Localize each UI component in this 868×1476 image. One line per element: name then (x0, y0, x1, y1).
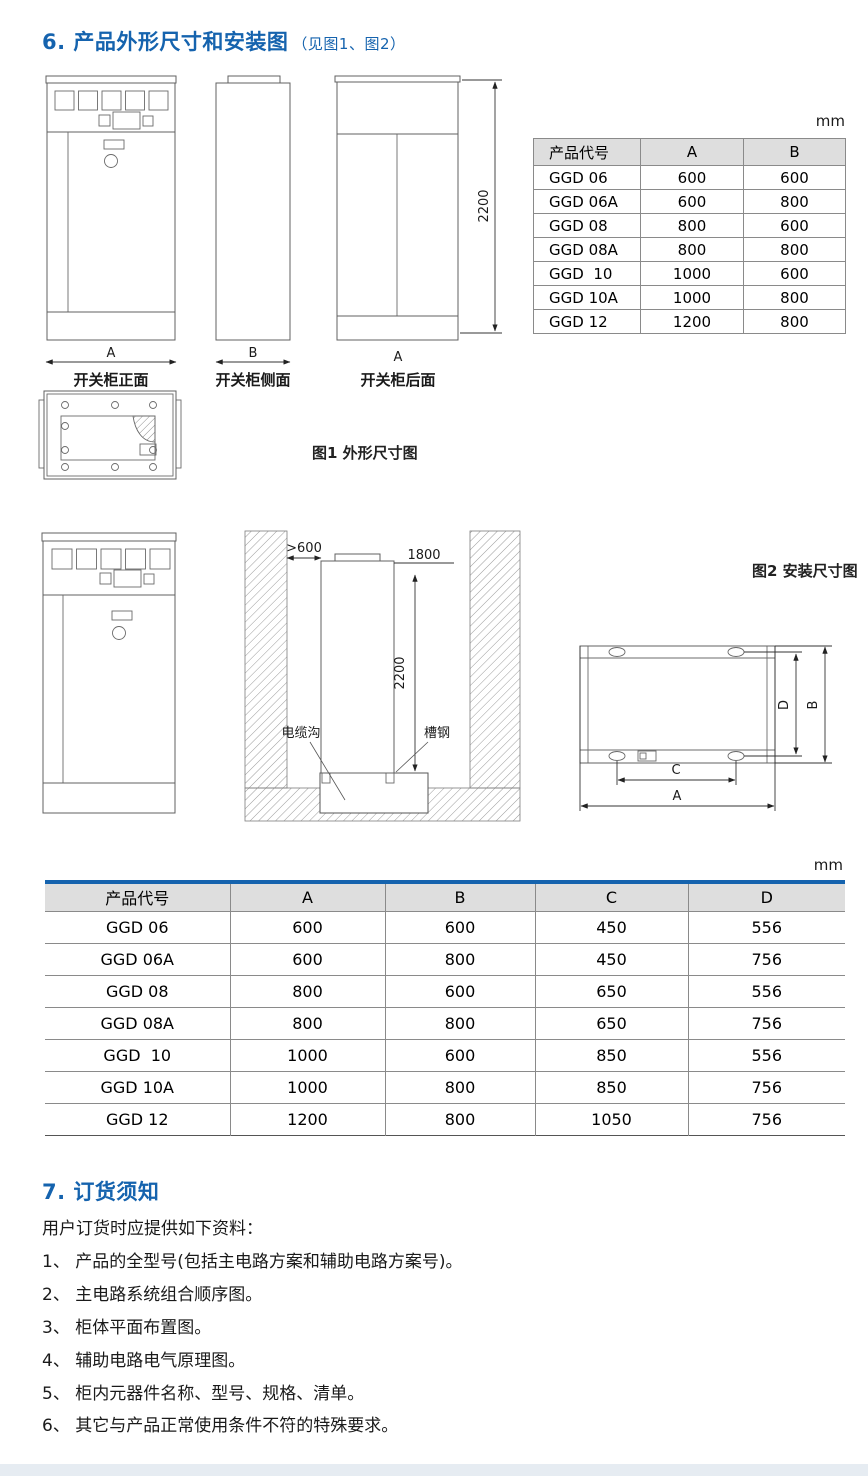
order-info-item: 2、 主电路系统组合顺序图。 (42, 1280, 262, 1305)
table-cell: 600 (641, 190, 744, 214)
table-cell: 650 (535, 975, 688, 1007)
table-row: GGD 101000600850556 (45, 1039, 845, 1071)
table-header-cell: A (641, 139, 744, 166)
table-cell: 800 (744, 238, 846, 262)
table-row: GGD 121200800 (534, 310, 846, 334)
order-info-item: 4、 辅助电路电气原理图。 (42, 1346, 245, 1371)
table-header-cell: 产品代号 (45, 882, 230, 911)
plan-dim-a-label: A (673, 789, 682, 804)
channel-steel-label: 槽钢 (424, 726, 450, 741)
table-cell: 850 (535, 1039, 688, 1071)
table-cell: GGD 12 (534, 310, 641, 334)
table-header-cell: 产品代号 (534, 139, 641, 166)
table-cell: 756 (688, 1007, 845, 1039)
top-view-drawing (36, 388, 184, 484)
table-cell: 1050 (535, 1103, 688, 1135)
rear-view-caption: 开关柜后面 (360, 371, 435, 389)
installation-dimension-table: 产品代号 A B C D GGD 06600600450556 GGD 06A6… (45, 880, 845, 1136)
table-cell: 600 (230, 943, 385, 975)
table-header-cell: C (535, 882, 688, 911)
page-bottom-edge (0, 1464, 868, 1476)
table-cell: 600 (641, 166, 744, 190)
table-cell: GGD 08 (45, 975, 230, 1007)
table-cell: 800 (385, 1103, 535, 1135)
section6-title-note: （见图1、图2） (292, 35, 405, 53)
clearance-dim-label: >600 (286, 541, 322, 556)
height-dim-label: 2200 (477, 189, 492, 222)
table-cell: 800 (744, 310, 846, 334)
plan-dim-d-label: D (777, 700, 792, 710)
table-cell: 756 (688, 1071, 845, 1103)
table-row: GGD 08800600650556 (45, 975, 845, 1007)
section6-title: 6. 产品外形尺寸和安装图（见图1、图2） (42, 26, 406, 56)
table-cell: 756 (688, 943, 845, 975)
pit-cross-section-drawing: >600 1800 2200 电缆沟 槽钢 (245, 531, 520, 821)
front-view-caption: 开关柜正面 (73, 371, 148, 389)
side-view-drawing: B 开关柜侧面 (215, 76, 290, 389)
order-info-item: 5、 柜内元器件名称、型号、规格、清单。 (42, 1379, 364, 1404)
table-cell: GGD 10 (45, 1039, 230, 1071)
table-row: GGD 06A600800450756 (45, 943, 845, 975)
table-cell: GGD 10A (45, 1071, 230, 1103)
table-header-row: 产品代号 A B (534, 139, 846, 166)
table2-unit-label: mm (543, 856, 843, 874)
table-cell: 600 (385, 1039, 535, 1071)
table-header-cell: D (688, 882, 845, 911)
table-cell: GGD 08 (534, 214, 641, 238)
table-cell: 850 (535, 1071, 688, 1103)
plan-dim-c-label: C (671, 763, 680, 778)
table-cell: 556 (688, 911, 845, 943)
table-row: GGD 06600600450556 (45, 911, 845, 943)
table-cell: 600 (744, 166, 846, 190)
table-cell: 600 (744, 214, 846, 238)
order-info-item: 1、 产品的全型号(包括主电路方案和辅助电路方案号)。 (42, 1247, 462, 1272)
figure1-caption: 图1 外形尺寸图 (312, 442, 418, 463)
table-cell: 1000 (230, 1039, 385, 1071)
side-view-caption: 开关柜侧面 (215, 371, 290, 389)
table-cell: 600 (230, 911, 385, 943)
cabinet-front-drawing (42, 533, 176, 813)
table-cell: 800 (641, 214, 744, 238)
table-cell: 800 (385, 1071, 535, 1103)
table1-unit-label: mm (533, 112, 845, 130)
table-header-row: 产品代号 A B C D (45, 882, 845, 911)
document-page: 6. 产品外形尺寸和安装图（见图1、图2） A 开关柜正 (0, 0, 868, 1476)
table-cell: 800 (385, 943, 535, 975)
table-cell: 450 (535, 911, 688, 943)
order-info-item: 6、 其它与产品正常使用条件不符的特殊要求。 (42, 1411, 398, 1436)
table-cell: 1200 (230, 1103, 385, 1135)
table-row: GGD 101000600 (534, 262, 846, 286)
table-cell: 556 (688, 1039, 845, 1071)
height-dimension: 2200 (460, 80, 502, 333)
side-depth-dim-label: B (249, 346, 258, 361)
table-cell: GGD 06 (534, 166, 641, 190)
table-cell: 800 (230, 1007, 385, 1039)
table-cell: 756 (688, 1103, 845, 1135)
table-row: GGD 1212008001050756 (45, 1103, 845, 1135)
table-cell: GGD 06 (45, 911, 230, 943)
table-row: GGD 10A1000800850756 (45, 1071, 845, 1103)
rear-width-dim-label: A (394, 350, 403, 365)
table-cell: GGD 10A (534, 286, 641, 310)
table-cell: GGD 06A (45, 943, 230, 975)
table-cell: 600 (744, 262, 846, 286)
table-cell: GGD 12 (45, 1103, 230, 1135)
table-row: GGD 06A600800 (534, 190, 846, 214)
cable-trench-label: 电缆沟 (281, 725, 320, 741)
table-row: GGD 06600600 (534, 166, 846, 190)
table-cell: GGD 10 (534, 262, 641, 286)
section6-title-text: 6. 产品外形尺寸和安装图 (42, 30, 288, 54)
foundation-plan-drawing: D B C A (580, 646, 832, 811)
section7-title: 7. 订货须知 (42, 1176, 159, 1206)
plan-dim-b-label: B (806, 701, 821, 710)
section7-title-text: 7. 订货须知 (42, 1180, 159, 1204)
table-cell: 800 (744, 286, 846, 310)
installation-drawings: >600 1800 2200 电缆沟 槽钢 (30, 523, 860, 835)
table-cell: 1200 (641, 310, 744, 334)
table-cell: 800 (230, 975, 385, 1007)
table-cell: 600 (385, 975, 535, 1007)
table-header-cell: B (744, 139, 846, 166)
rear-view-drawing: A 开关柜后面 (335, 76, 460, 389)
section7-intro: 用户订货时应提供如下资料： (42, 1214, 263, 1239)
front-width-dim-label: A (107, 346, 116, 361)
dim-1800-label: 1800 (407, 548, 440, 563)
dim-2200-label: 2200 (393, 656, 408, 689)
table-cell: 800 (744, 190, 846, 214)
table-cell: 1000 (641, 262, 744, 286)
table-cell: GGD 08A (45, 1007, 230, 1039)
table-cell: 1000 (641, 286, 744, 310)
table-cell: 650 (535, 1007, 688, 1039)
table-cell: 800 (641, 238, 744, 262)
table-cell: 556 (688, 975, 845, 1007)
table-header-cell: B (385, 882, 535, 911)
table-header-cell: A (230, 882, 385, 911)
table-cell: 1000 (230, 1071, 385, 1103)
table-row: GGD 08A800800 (534, 238, 846, 262)
table-cell: 600 (385, 911, 535, 943)
table-row: GGD 08A800800650756 (45, 1007, 845, 1039)
table-cell: GGD 06A (534, 190, 641, 214)
dimension-table-ab: 产品代号 A B GGD 06600600 GGD 06A600800 GGD … (533, 138, 846, 334)
table-cell: 450 (535, 943, 688, 975)
front-view-drawing: A 开关柜正面 (46, 76, 176, 389)
table-row: GGD 08800600 (534, 214, 846, 238)
table-cell: 800 (385, 1007, 535, 1039)
table-row: GGD 10A1000800 (534, 286, 846, 310)
order-info-item: 3、 柜体平面布置图。 (42, 1313, 211, 1338)
figure2-caption: 图2 安装尺寸图 (752, 560, 858, 581)
table-cell: GGD 08A (534, 238, 641, 262)
